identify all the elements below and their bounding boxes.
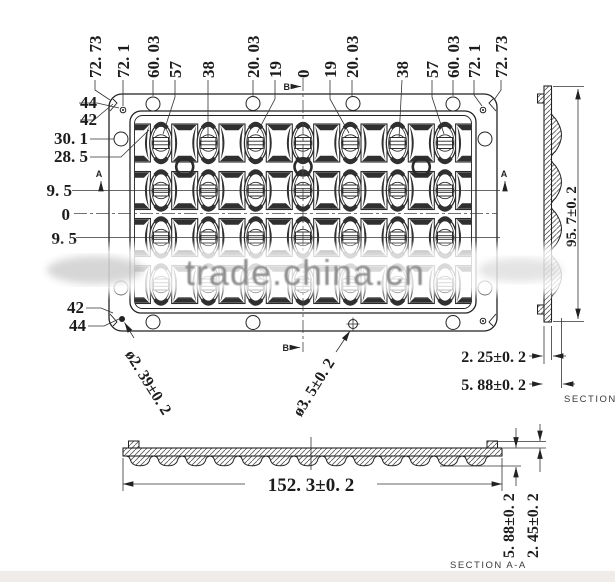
bottom-tab-right	[487, 441, 498, 448]
hole-callouts: ø2. 39±0. 2 ø3. 5±0. 2	[121, 323, 350, 420]
side-flat-thickness-label: 2. 25±0. 2	[461, 349, 526, 366]
bottom-section-view: 152. 3±0. 2 5. 88±0. 2 2. 45±0. 2 SECTIO…	[123, 424, 546, 571]
dim-label: 30. 1	[54, 129, 88, 148]
side-height-label: 95. 7±0. 2	[564, 186, 580, 247]
dim-label: 72. 73	[492, 36, 511, 79]
top-view	[72, 78, 500, 352]
dim-label: 19	[266, 61, 285, 78]
corner-hole-dia-label: ø2. 39±0. 2	[121, 347, 174, 418]
dim-label: 0	[62, 205, 71, 224]
bottom-tab-left	[129, 441, 140, 448]
bottom-flat-thickness-label: 2. 45±0. 2	[525, 493, 542, 558]
dim-label: 57	[166, 61, 185, 79]
dim-label: 0	[294, 70, 313, 79]
dim-label: 72. 1	[114, 44, 133, 78]
dim-label: 19	[321, 61, 340, 78]
dim-label: 57	[423, 61, 442, 79]
cad-drawing-page: 72. 73 72. 1 60. 03 57 38 20. 03 19 0 19…	[0, 0, 615, 582]
center-cross-hole	[347, 318, 360, 331]
dim-label: 20. 03	[244, 36, 263, 79]
section-marker-b-top: B	[284, 82, 291, 92]
section-marker-a-right: A	[501, 169, 508, 179]
bottom-width-label: 152. 3±0. 2	[268, 475, 354, 496]
bottom-total-thickness-label: 5. 88±0. 2	[501, 493, 518, 558]
dim-label: 72. 73	[86, 36, 105, 79]
side-tab-bottom	[538, 305, 545, 314]
dim-label: 42	[67, 298, 84, 317]
dim-label: 20. 03	[343, 36, 362, 79]
side-tab-top	[538, 94, 545, 103]
left-dimension-labels: 44 42 30. 1 28. 5 9. 5 0 9. 5 42 44	[47, 93, 150, 335]
dim-label: 9. 5	[52, 229, 78, 248]
side-section-title: SECTION	[564, 394, 615, 405]
dim-label: 9. 5	[47, 181, 73, 200]
dim-label: 28. 5	[54, 147, 88, 166]
bottom-profile-bar	[123, 448, 502, 456]
section-marker-b-bottom: B	[283, 343, 290, 353]
dim-label: 60. 03	[144, 36, 163, 79]
dim-label: 60. 03	[444, 36, 463, 79]
lens-plate-engineering-drawing: 72. 73 72. 1 60. 03 57 38 20. 03 19 0 19…	[0, 0, 615, 582]
lens-scallops	[127, 456, 490, 466]
watermark-text: trade.china.cn	[185, 252, 425, 293]
side-total-thickness-label: 5. 88±0. 2	[461, 377, 526, 394]
section-marker-a-left: A	[96, 169, 103, 179]
watermark: trade.china.cn	[25, 246, 570, 294]
dim-label: 44	[69, 316, 87, 335]
dim-label: 72. 1	[465, 44, 484, 78]
bottom-section-title: SECTION A-A	[450, 560, 527, 571]
dim-label: 38	[393, 61, 412, 78]
center-hole-dia-label: ø3. 5±0. 2	[290, 356, 339, 420]
dim-label: 38	[199, 61, 218, 78]
page-bottom-band	[0, 571, 615, 582]
